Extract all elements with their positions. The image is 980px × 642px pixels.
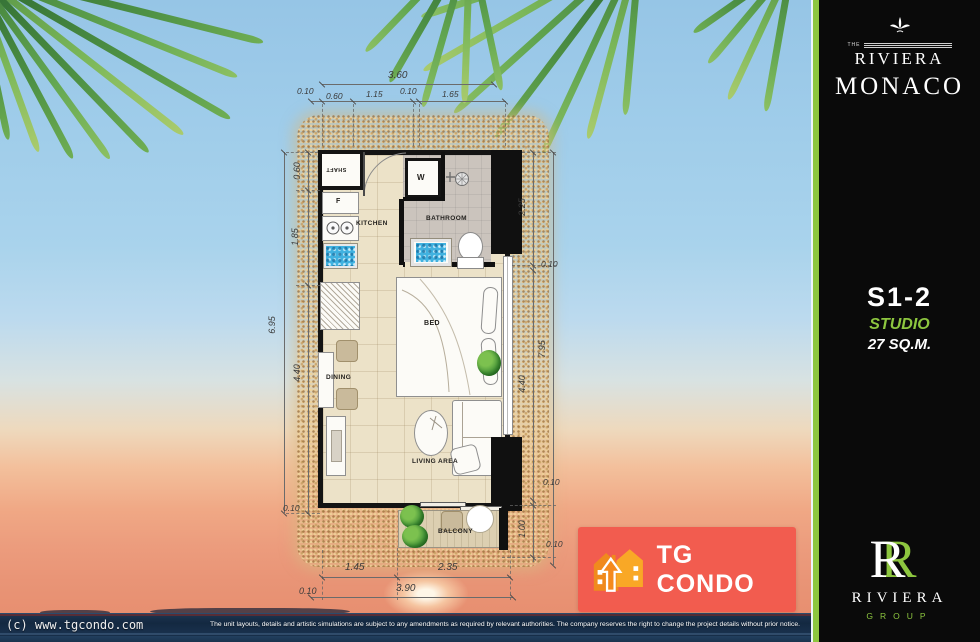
- room-label-balcony: BALCONY: [438, 528, 473, 535]
- dim-right: 2.25: [517, 198, 527, 216]
- group-name: RIVIERA: [819, 590, 980, 607]
- dim-ext: [419, 104, 420, 146]
- dim-bottom: 3.90: [396, 583, 415, 594]
- dim-line: [322, 577, 510, 578]
- room-label-washer: W: [417, 173, 425, 182]
- dim-right: 4.40: [517, 375, 527, 393]
- dim-right: 7.95: [537, 340, 547, 358]
- dim-left: 0.60: [292, 162, 302, 180]
- dim-top-total: 3.60: [388, 70, 407, 81]
- dim-ext: [322, 550, 323, 600]
- plant: [477, 350, 501, 376]
- window-glass-line: [507, 257, 508, 434]
- unit-info: S1-2 STUDIO 27 SQ.M.: [819, 282, 980, 353]
- dim-ext: [502, 557, 556, 558]
- unit-code: S1-2: [819, 282, 980, 313]
- brochure-page: SHAFT F W KITCHEN BATHROOM BED DINING LI…: [0, 0, 980, 642]
- dim-left: 0.10: [283, 503, 300, 513]
- dim-right: 0.10: [546, 539, 563, 549]
- dim-line: [553, 152, 554, 565]
- room-label-shaft: SHAFT: [326, 166, 346, 172]
- dim-line: [311, 597, 513, 598]
- wardrobe: [320, 282, 360, 330]
- dim-left: 1.85: [290, 228, 300, 246]
- dim-line: [308, 152, 309, 513]
- logo-rules: [864, 43, 952, 48]
- room-label-bathroom: BATHROOM: [426, 215, 467, 222]
- dim-left: 6.95: [267, 316, 277, 334]
- dim-bottom: 1.45: [345, 562, 364, 573]
- room-label-bed: BED: [424, 320, 440, 327]
- dim-top-seg: 0.10: [297, 86, 314, 96]
- dim-bottom: 0.10: [299, 586, 317, 596]
- dim-line: [284, 152, 285, 513]
- group-word: GROUP: [819, 611, 980, 621]
- tgcondo-watermark: TG CONDO: [578, 527, 796, 612]
- project-name: MONACO: [819, 73, 980, 101]
- tgcondo-houses-icon: [591, 545, 648, 595]
- unit-area: 27 SQ.M.: [819, 336, 980, 353]
- room-label-fridge: F: [336, 198, 341, 205]
- dim-ext: [353, 104, 354, 146]
- dim-top-seg: 1.65: [442, 89, 459, 99]
- monogram-white-r: R: [870, 530, 906, 588]
- dim-right: 0.10: [541, 259, 558, 269]
- bath-sink: [416, 243, 446, 262]
- dim-right: 1.00: [517, 520, 527, 538]
- disclaimer-text: The unit layouts, details and artistic s…: [210, 621, 810, 628]
- unit-type: STUDIO: [819, 316, 980, 334]
- wall-stub: [441, 152, 445, 200]
- riviera-group-monogram: R R: [865, 530, 935, 588]
- dim-bottom: 2.35: [438, 562, 457, 573]
- brand-name: RIVIERA: [819, 49, 980, 69]
- sea-streak: [0, 633, 814, 635]
- room-label-dining: DINING: [326, 374, 351, 381]
- coffee-table: [414, 410, 448, 456]
- dim-ext: [286, 513, 320, 514]
- dining-chair: [336, 388, 358, 410]
- dim-right: 0.10: [543, 477, 560, 487]
- balcony-wall: [499, 508, 508, 550]
- window: [503, 256, 513, 435]
- dim-ext: [286, 152, 318, 153]
- the-riviera-row: THE: [848, 42, 952, 48]
- dim-top-seg: 0.10: [400, 86, 417, 96]
- dim-top-seg: 0.60: [326, 91, 343, 101]
- dim-ext: [322, 104, 323, 146]
- dim-ext: [413, 104, 414, 146]
- dim-top-seg: 1.15: [366, 89, 383, 99]
- dining-chair: [336, 340, 358, 362]
- project-logo: THE RIVIERA MONACO: [819, 16, 980, 101]
- fleur-ornament-icon: [888, 16, 912, 40]
- the-label: THE: [848, 42, 861, 48]
- dim-left: 4.40: [292, 364, 302, 382]
- stove: [322, 216, 359, 241]
- tv: [331, 430, 342, 462]
- toilet-tank: [457, 257, 484, 269]
- dim-ext: [505, 104, 506, 146]
- dim-ext: [522, 152, 556, 153]
- balcony-plant: [402, 525, 428, 548]
- copyright-text: (c) www.tgcondo.com: [6, 618, 143, 632]
- group-logo: R R RIVIERA GROUP: [819, 530, 980, 621]
- dim-line: [322, 84, 494, 85]
- room-label-living: LIVING AREA: [412, 458, 458, 465]
- wall-stub: [403, 197, 445, 201]
- tgcondo-logo-text: TG CONDO: [657, 541, 796, 599]
- bathroom-wall: [399, 199, 404, 265]
- kitchen-sink: [324, 244, 357, 268]
- column: [491, 437, 522, 511]
- room-label-kitchen: KITCHEN: [356, 220, 388, 227]
- sidebar: THE RIVIERA MONACO S1-2 STUDIO 27 SQ.M. …: [813, 0, 980, 642]
- dim-line: [311, 101, 506, 102]
